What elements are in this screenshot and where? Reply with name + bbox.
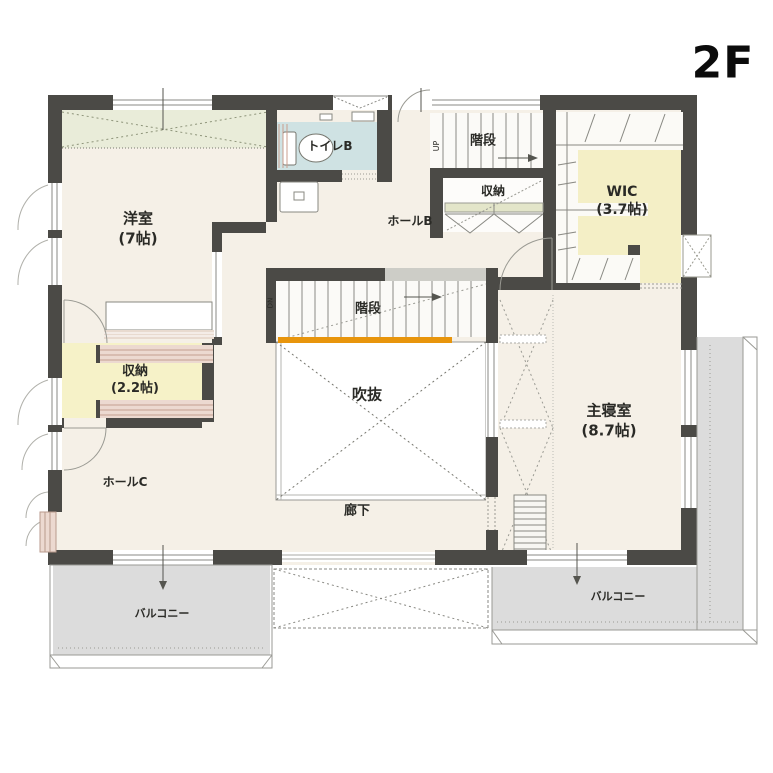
washbasin-icon (280, 182, 318, 212)
room-label-wic: WIC (3.7帖) (596, 183, 648, 219)
room-label-shunou-west: 収納 (2.2帖) (111, 364, 159, 398)
stairs-center-direction: DN (266, 298, 275, 309)
wic-fixed-window (681, 235, 711, 277)
room-size: (7帖) (118, 229, 157, 249)
room-label-fukinuke: 吹抜 (352, 385, 382, 405)
room-size: (3.7帖) (596, 201, 648, 219)
room-label-hall-b: ホールB (387, 214, 432, 230)
shunou-west-door-gap (64, 418, 106, 428)
room-size: (2.2帖) (111, 381, 159, 398)
fukinuke-void (276, 342, 486, 500)
top-door-gap (392, 95, 432, 110)
room-label-yoshitsu: 洋室 (7帖) (118, 210, 157, 249)
room-name: 主寝室 (581, 402, 636, 422)
stairs-upper-direction: UP (432, 141, 442, 152)
room-label-stairs-upper: 階段 (470, 134, 496, 151)
stair-handrail-accent (278, 337, 452, 343)
floor-plan-2f: 2F 洋室 (7帖) トイレB 階段 UP 収納 ホールB WIC (3.7帖)… (0, 0, 773, 773)
room-name: WIC (596, 183, 648, 201)
room-label-master-bedroom: 主寝室 (8.7帖) (581, 402, 636, 441)
room-name: 収納 (111, 364, 159, 381)
stair-upper-rail (385, 268, 486, 281)
bed-icon (104, 302, 214, 339)
yoshitsu-closet-band (62, 110, 268, 148)
room-size: (8.7帖) (581, 421, 636, 441)
ladder-icon (514, 495, 546, 557)
room-label-balcony-right: バルコニー (591, 590, 646, 604)
room-label-stairs-center: 階段 (355, 302, 381, 319)
room-name: 洋室 (118, 210, 157, 230)
wall-niche-panel (40, 512, 56, 552)
room-label-hall-c: ホールC (103, 475, 148, 491)
floor-label: 2F (692, 38, 755, 89)
room-label-balcony-left: バルコニー (135, 607, 190, 621)
room-label-rouka: 廊下 (344, 504, 370, 521)
room-label-toilet-b: トイレB (307, 139, 352, 155)
room-label-shunou-upper: 収納 (481, 184, 505, 200)
